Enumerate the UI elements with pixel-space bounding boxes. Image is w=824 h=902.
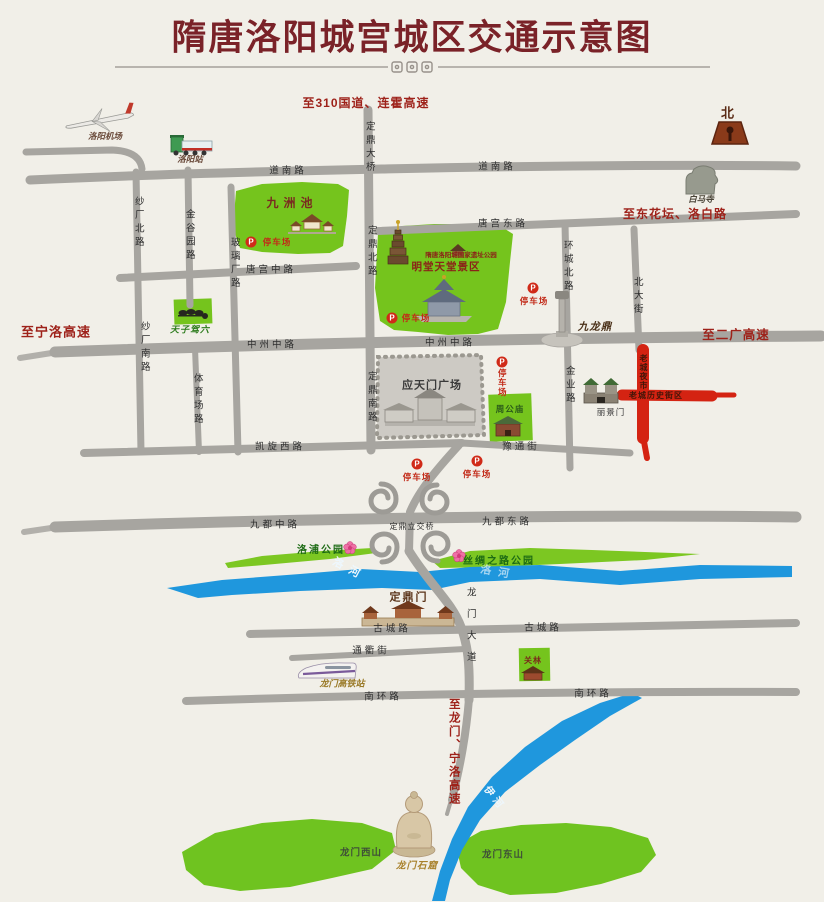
road-tanggong-dong xyxy=(378,214,796,231)
highway-label-tolongmen: 至龙门、宁洛高速 xyxy=(447,698,459,806)
road-label-jinguyuan: 金谷园路 xyxy=(184,209,194,263)
park-label-yizhi: 隋唐洛阳城国家遗址公园 xyxy=(425,253,497,260)
landmark-label-dingdingmen: 定鼎门 xyxy=(390,593,429,604)
road-label-dingding-lijiao: 定鼎立交桥 xyxy=(390,523,435,531)
landmark-label-yingtianmen: 应天门广场 xyxy=(402,381,462,392)
hill-label-dongshan: 龙门东山 xyxy=(482,850,524,860)
road-label-bolichang: 玻璃厂路 xyxy=(229,237,239,291)
transport-label-railway-station: 洛阳站 xyxy=(177,156,203,165)
road-label-tanggong-zhong: 唐宫中路 xyxy=(246,265,296,275)
road-label-gucheng-west: 古城路 xyxy=(373,624,411,634)
road-label-jiudu-zhong: 九都中路 xyxy=(250,520,300,530)
road-label-jinye: 金业路 xyxy=(564,366,574,407)
landmark-label-jiulongding: 九龙鼎 xyxy=(578,322,613,333)
transport-label-airport: 洛阳机场 xyxy=(88,133,122,142)
parking-label: 停车场 xyxy=(463,470,492,479)
park-label-guanlin: 关林 xyxy=(524,657,542,665)
highway-label-ningluo: 至宁洛高速 xyxy=(21,326,91,339)
parking-icon: P xyxy=(387,313,398,324)
map-page: 隋唐洛阳城宫城区交通示意图 至310国道、连霍高速 至宁洛高速 至东花坛、洛白路… xyxy=(0,0,824,902)
lijingmen-gate-icon xyxy=(583,378,619,403)
road-label-nanhuan-west: 南环路 xyxy=(364,692,402,702)
landmark-label-lijingmen: 丽景门 xyxy=(597,408,626,417)
road-label-tiyuchang: 体育场路 xyxy=(192,373,202,427)
baimasi-statue-icon xyxy=(686,166,718,194)
road-label-zhongzhou-east: 中州中路 xyxy=(425,338,475,348)
park-label-jiuzhouchi: 九洲池 xyxy=(266,197,317,209)
dingdingmen-gate-icon xyxy=(362,601,454,626)
road-label-nanhuan-east: 南环路 xyxy=(574,689,612,699)
road-gucheng xyxy=(250,623,796,634)
road-label-zhongzhou-west: 中州中路 xyxy=(247,340,297,350)
road-label-gucheng-east: 古城路 xyxy=(524,623,562,633)
hsr-train-icon xyxy=(298,663,356,678)
transport-label-hsr-station: 龙门高铁站 xyxy=(319,681,364,690)
road-nanhuan xyxy=(186,692,796,701)
road-label-daonan-west: 道南路 xyxy=(269,166,307,176)
park-label-tianzijialiu: 天子驾六 xyxy=(170,327,210,336)
parking-label: 停车场 xyxy=(403,473,432,482)
highway-label-erguang: 至二广高速 xyxy=(702,329,770,342)
landmark-label-shiku: 龙门石窟 xyxy=(396,861,438,871)
road-label-kaixuan-xi: 凯旋西路 xyxy=(255,442,305,452)
buddha-statue-icon xyxy=(393,792,435,858)
park-label-zhougongmiao: 周公庙 xyxy=(496,405,525,414)
parking-icon: P xyxy=(472,456,483,467)
road-label-tongqu: 通衢街 xyxy=(352,646,390,656)
road-label-dingding-bei: 定鼎北路 xyxy=(366,225,376,279)
park-label-mingtang: 明堂天堂景区 xyxy=(412,262,481,273)
road-airport-curve xyxy=(26,150,142,169)
road-label-shachang-nan: 纱厂南路 xyxy=(139,321,149,375)
road-label-yutong: 豫通街 xyxy=(502,442,540,452)
road-label-jiudu-dong: 九都东路 xyxy=(482,517,532,527)
parking-icon: P xyxy=(528,283,539,294)
page-title: 隋唐洛阳城宫城区交通示意图 xyxy=(171,21,652,56)
highway-label-donghuatan: 至东花坛、洛白路 xyxy=(623,208,727,220)
parking-icon: P xyxy=(412,459,423,470)
railway-train-icon xyxy=(170,135,212,156)
parking-label: 停车场 xyxy=(263,238,292,247)
oldtown-label-horizontal: 老城历史街区 xyxy=(629,392,683,400)
park-label-luopu: 洛浦公园 xyxy=(297,546,345,556)
highway-label-g310: 至310国道、连霍高速 xyxy=(302,97,429,109)
title-divider xyxy=(115,62,710,72)
parking-icon: P xyxy=(246,237,257,248)
map-canvas xyxy=(0,0,824,902)
compass-icon xyxy=(712,122,748,144)
road-zhongzhou-tail xyxy=(20,352,58,358)
road-label-longmen-dadao: 龙门大道 xyxy=(465,587,475,673)
oldtown-label-vertical: 老城夜市 xyxy=(639,354,647,390)
road-label-beidajie: 北大街 xyxy=(632,277,642,318)
road-yutong xyxy=(462,443,630,453)
landmark-label-baimasi: 白马寺 xyxy=(688,196,714,205)
road-label-shachang-bei: 纱厂北路 xyxy=(133,196,143,250)
flower-icon xyxy=(344,542,357,554)
parking-icon: P xyxy=(497,357,508,368)
park-label-sichou: 丝绸之路公园 xyxy=(463,557,535,567)
parking-label: 停车场 xyxy=(498,369,507,398)
hill-label-xishan: 龙门西山 xyxy=(340,848,382,858)
oldtown-street-vertical-tail xyxy=(643,436,647,458)
road-label-tanggong-dong: 唐宫东路 xyxy=(478,219,528,229)
compass-north-label: 北 xyxy=(721,107,737,120)
road-label-dingding-daqiao: 定鼎大桥 xyxy=(364,121,374,175)
road-label-daonan-east: 道南路 xyxy=(478,162,516,172)
road-label-dingding-nan: 定鼎南路 xyxy=(366,371,376,425)
parking-label: 停车场 xyxy=(402,314,431,323)
road-label-huancheng-bei: 环城北路 xyxy=(562,240,572,294)
parking-label: 停车场 xyxy=(520,297,549,306)
